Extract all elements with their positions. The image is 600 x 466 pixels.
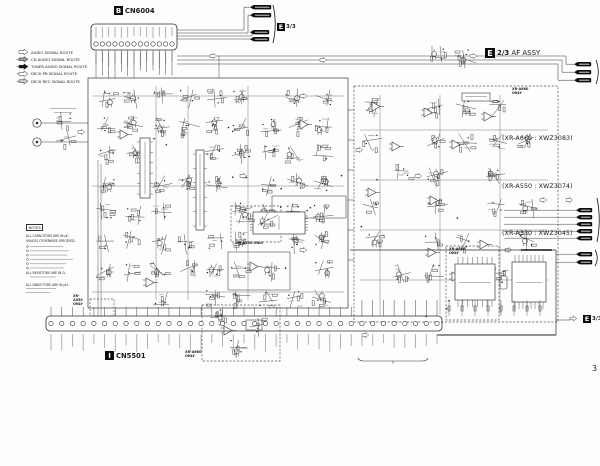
component-cluster	[232, 118, 249, 135]
opamp-symbol	[117, 130, 132, 139]
component-cluster	[153, 176, 173, 193]
route-arrow	[210, 53, 217, 58]
opamp-symbol	[421, 108, 436, 117]
signal-flag	[576, 252, 592, 256]
legend-item-deck-rec: DECK REC SIGNAL ROUTE	[31, 80, 80, 84]
note-unless: UNLESS OTHERWISE SPECIFIED.	[26, 239, 76, 244]
top-connector-badge: B	[114, 6, 123, 15]
variant-label-a660-mid: XR-A660 ONLY	[185, 351, 202, 359]
title-block: E 2/3 AF ASSY (XR-A660 : XWZ3083) (XR-A5…	[485, 10, 573, 315]
xr-a550-box	[90, 299, 114, 316]
component-cluster	[178, 235, 194, 255]
connector-pin	[253, 321, 257, 325]
connector-pin	[306, 321, 310, 325]
component-cluster	[315, 231, 329, 249]
connector-pin	[92, 321, 96, 325]
assy-title: AF ASSY	[511, 49, 540, 57]
component-cluster	[233, 89, 248, 104]
legend-item-tuner: TUNER AUDIO SIGNAL ROUTE	[31, 65, 87, 69]
route-arrow	[362, 332, 369, 337]
component-cluster	[315, 260, 333, 278]
connector-pin	[163, 42, 167, 46]
signal-flag	[250, 5, 271, 9]
route-arrow	[78, 129, 85, 134]
signal-flag	[576, 229, 592, 233]
ic-block	[137, 138, 153, 198]
component-cluster	[427, 133, 445, 148]
connector-pin	[170, 42, 174, 46]
section-badge: E	[485, 48, 495, 58]
variant-label-a330: XR-A330 ONLY	[236, 242, 263, 246]
e33-right-ref: 3/3	[592, 316, 600, 322]
component-cluster	[313, 144, 333, 161]
component-cluster	[179, 118, 200, 138]
connector-pin	[157, 42, 161, 46]
signal-flag	[574, 62, 591, 66]
component-cluster	[315, 118, 332, 135]
connector-pin	[220, 321, 224, 325]
legend-arrow-icon	[19, 78, 28, 84]
route-arrow	[320, 57, 327, 62]
component-cluster	[97, 117, 115, 133]
e33-badge-top: E 3/3	[277, 23, 296, 31]
bottom-connector-body	[46, 316, 442, 331]
opamp-symbol	[221, 326, 236, 335]
top-connector-label: B CN6004	[114, 6, 155, 15]
ic-block	[250, 212, 308, 234]
connector-pin	[317, 321, 321, 325]
connector-pin	[145, 321, 149, 325]
component-cluster	[456, 133, 477, 152]
model-line-2: (XR-A550 : XWZ3074)	[502, 182, 573, 192]
signal-flag	[576, 236, 592, 240]
component-cluster	[154, 117, 170, 136]
component-cluster	[56, 132, 76, 149]
component-cluster	[206, 117, 223, 134]
connector-pin	[177, 321, 181, 325]
connector-pin	[100, 42, 104, 46]
connector-pin	[295, 321, 299, 325]
component-cluster	[178, 174, 195, 189]
connector-pin	[135, 321, 139, 325]
route-arrow	[470, 53, 477, 58]
connector-pin	[188, 321, 192, 325]
opamp-symbol	[425, 248, 440, 257]
component-cluster	[180, 260, 197, 277]
connector-pin	[392, 321, 396, 325]
connector-pin	[199, 321, 203, 325]
component-cluster	[207, 233, 224, 249]
connector-pin	[113, 42, 117, 46]
signal-flag	[250, 37, 269, 41]
connector-pin	[124, 321, 128, 325]
connector-pin	[81, 321, 85, 325]
route-arrow	[570, 316, 577, 321]
component-cluster	[207, 264, 224, 278]
opamp-symbol	[247, 262, 262, 271]
connector-pin	[210, 321, 214, 325]
connector-pin	[349, 321, 353, 325]
component-cluster	[180, 90, 200, 109]
bottom-connector-label: I CN5501	[105, 351, 146, 360]
component-cluster	[363, 199, 379, 215]
top-connector-ref: CN6004	[125, 7, 155, 15]
note-resistors: ALL RESISTORS ARE IN Ω.	[26, 271, 66, 276]
e33-right-letter: E	[583, 315, 591, 323]
component-cluster	[313, 205, 333, 223]
component-cluster	[232, 291, 250, 308]
input-jack	[33, 138, 88, 146]
connector-pin	[167, 321, 171, 325]
connector-pin	[138, 42, 142, 46]
connector-pin	[263, 321, 267, 325]
opamp-symbol	[143, 278, 158, 287]
component-cluster	[124, 263, 141, 282]
e33-top-ref: 3/3	[286, 24, 296, 30]
connector-pin	[70, 321, 74, 325]
component-cluster	[362, 134, 382, 152]
connector-pin	[403, 321, 407, 325]
connector-pin	[132, 42, 136, 46]
note-inductors: ALL INDUCTORS ARE IN µH.	[26, 283, 69, 288]
variant-label-a660-bottom-right: XR-A660 ONLY	[449, 248, 466, 256]
component-cluster	[261, 119, 282, 137]
signal-flag	[576, 222, 592, 226]
notes-title: NOTES	[26, 224, 43, 231]
opamp-symbol	[389, 142, 404, 151]
connector-pin	[370, 321, 374, 325]
component-cluster	[126, 206, 145, 225]
connector-pin	[49, 321, 53, 325]
legend-arrow-icon	[19, 57, 28, 63]
component-cluster	[153, 88, 173, 104]
component-cluster	[152, 235, 171, 255]
component-cluster	[56, 112, 71, 131]
component-cluster	[287, 291, 303, 308]
component-cluster	[153, 293, 169, 306]
component-cluster	[207, 176, 228, 192]
connector-pin	[151, 42, 155, 46]
component-cluster	[99, 90, 119, 107]
connector-pin	[119, 42, 123, 46]
route-arrow	[356, 147, 363, 152]
component-cluster	[151, 203, 171, 220]
route-arrow	[300, 247, 307, 252]
component-cluster	[230, 340, 248, 358]
ic-block	[193, 150, 207, 230]
connector-pin	[113, 321, 117, 325]
component-cluster	[285, 146, 303, 163]
connector-pin	[274, 321, 278, 325]
component-cluster	[96, 264, 114, 280]
component-cluster	[261, 262, 280, 281]
signal-flag	[574, 70, 591, 74]
component-cluster	[286, 89, 300, 107]
component-cluster	[205, 290, 225, 306]
route-arrow	[300, 93, 307, 98]
signal-flag	[576, 215, 592, 219]
legend-arrow-icon	[19, 49, 28, 55]
component-cluster	[455, 49, 476, 68]
signal-flag	[576, 208, 592, 212]
model-line-3: (XR-A330 : XWZ3045)	[502, 229, 573, 239]
connector-pin	[424, 321, 428, 325]
connector-pin	[242, 321, 246, 325]
component-cluster	[96, 203, 115, 220]
connector-pin	[360, 321, 364, 325]
component-cluster	[123, 115, 143, 131]
signal-flag	[250, 13, 271, 17]
component-cluster	[123, 89, 139, 108]
connector-pin	[338, 321, 342, 325]
bottom-connector-badge: I	[105, 351, 114, 360]
model-line-1: (XR-A660 : XWZ3083)	[502, 134, 573, 144]
legend-item-audio: AUDIO SIGNAL ROUTE	[31, 51, 73, 55]
connector-pin	[381, 321, 385, 325]
connector-pin	[94, 42, 98, 46]
component-cluster	[395, 164, 414, 179]
input-jack	[33, 119, 88, 127]
component-cluster	[316, 90, 333, 106]
component-cluster	[366, 231, 385, 247]
connector-pin	[435, 321, 439, 325]
component-cluster	[287, 173, 308, 189]
connector-pin	[106, 42, 110, 46]
legend-item-deck-pb: DECK PB SIGNAL ROUTE	[31, 72, 77, 76]
connector-pin	[231, 321, 235, 325]
connector-pin	[144, 42, 148, 46]
component-cluster	[424, 264, 443, 282]
connector-pin	[102, 321, 106, 325]
connector-pin	[328, 321, 332, 325]
connector-pin	[413, 321, 417, 325]
component-cluster	[427, 168, 448, 188]
connector-pin	[60, 321, 64, 325]
legend-arrow-icon	[19, 71, 28, 77]
signal-flag	[574, 78, 591, 82]
component-cluster	[96, 235, 114, 253]
component-cluster	[100, 177, 115, 194]
connector-pin	[285, 321, 289, 325]
opamp-symbol	[365, 188, 380, 197]
route-arrow	[415, 173, 422, 178]
bottom-connector-ref: CN5501	[116, 352, 146, 360]
component-cluster	[98, 146, 116, 165]
component-cluster	[207, 89, 227, 108]
legend-item-cd: CD AUDIO SIGNAL ROUTE	[31, 58, 80, 62]
xr-a660-mid-box	[202, 305, 280, 361]
page-number: 3	[592, 364, 597, 373]
connector-pin	[156, 321, 160, 325]
schematic-page: B CN6004 E 2/3 AF ASSY (XR-A660 : XWZ308…	[0, 0, 600, 466]
component-cluster	[289, 117, 308, 137]
component-cluster	[312, 290, 331, 307]
component-cluster	[262, 145, 279, 159]
variant-label-a550: XR-A550 ONLY	[73, 295, 89, 307]
legend-arrow-icon	[19, 64, 28, 70]
component-cluster	[205, 144, 224, 159]
connector-pin	[125, 42, 129, 46]
section-page-ref: 2/3	[497, 49, 509, 57]
e33-top-letter: E	[277, 23, 285, 31]
component-cluster	[456, 100, 476, 117]
component-cluster	[123, 231, 140, 249]
signal-flag	[250, 30, 269, 34]
signal-flag	[576, 260, 592, 264]
variant-label-a660-right: XR-A660 ONLY	[512, 88, 529, 96]
component-cluster	[314, 176, 332, 191]
component-cluster	[150, 263, 170, 277]
e33-badge-right: E 3/3	[583, 315, 600, 323]
component-cluster	[250, 318, 267, 337]
component-cluster	[232, 144, 251, 164]
